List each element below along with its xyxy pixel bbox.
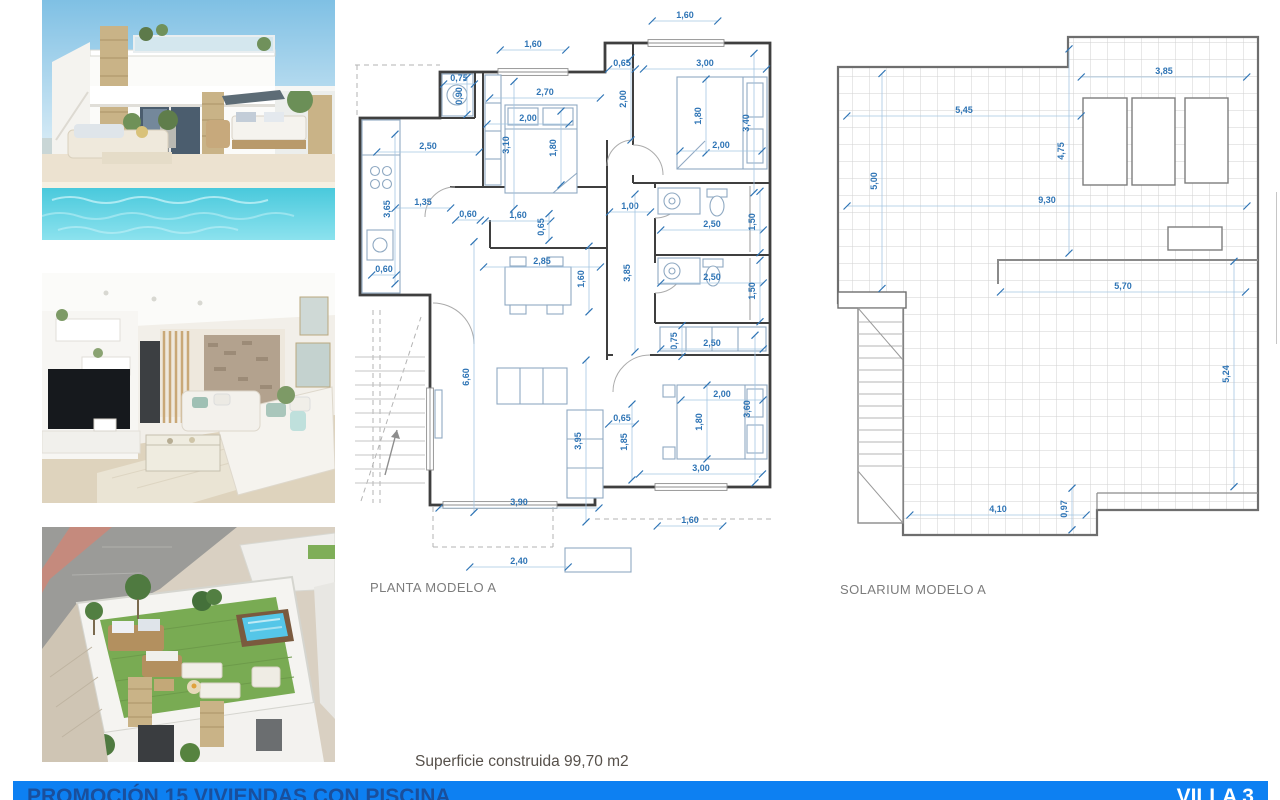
photo-living-room	[42, 273, 335, 503]
dimension-label: 2,00	[618, 90, 628, 108]
pergola-panels	[1083, 98, 1228, 185]
promo-banner-title: PROMOCIÓN 15 VIVIENDAS CON PISCINA	[13, 781, 465, 800]
dimension-label: 0,60	[459, 209, 477, 219]
dimension: 1,60	[649, 10, 722, 25]
photo-rooftop-solarium	[42, 527, 335, 762]
dimension-label: 2,70	[536, 87, 554, 97]
solarium-plan: 3,855,454,755,009,305,705,244,100,97	[835, 25, 1265, 600]
solarium-plan-caption: SOLARIUM MODELO A	[840, 582, 986, 597]
dimension-label: 2,40	[510, 556, 528, 566]
photo-villa-exterior	[42, 0, 335, 240]
dimension-label: 3,90	[510, 497, 528, 507]
dimension-label: 0,75	[450, 73, 468, 83]
dimension-label: 9,30	[1038, 195, 1056, 205]
landing-tab	[838, 292, 906, 308]
dimension-label: 1,60	[676, 10, 694, 20]
dimension-label: 3,00	[696, 58, 714, 68]
dimension-label: 1,80	[693, 107, 703, 125]
dimension-label: 2,50	[703, 272, 721, 282]
dimension-label: 3,60	[742, 400, 752, 418]
promo-banner: PROMOCIÓN 15 VIVIENDAS CON PISCINA VILLA…	[13, 781, 1268, 800]
dimension-label: 3,85	[622, 264, 632, 282]
villa-exterior-render	[42, 0, 335, 240]
dimension-label: 0,90	[454, 87, 464, 105]
promo-banner-villa: VILLA 3	[1163, 781, 1268, 800]
dimension-label: 0,65	[536, 218, 546, 236]
dimension-label: 1,60	[576, 270, 586, 288]
dimension-label: 3,95	[573, 432, 583, 450]
exterior-stairs	[355, 357, 425, 483]
dimension-label: 1,80	[548, 139, 558, 157]
dimension-label: 2,85	[533, 256, 551, 266]
dimension-label: 3,65	[382, 200, 392, 218]
dimension: 1,60	[497, 39, 570, 54]
dimension-label: 6,60	[461, 368, 471, 386]
dimension-label: 2,00	[713, 389, 731, 399]
dimension-label: 1,50	[747, 282, 757, 300]
dimension-label: 0,60	[375, 264, 393, 274]
dimension-label: 4,75	[1056, 142, 1066, 160]
living-room-render	[42, 273, 335, 503]
dimension-label: 1,00	[621, 201, 639, 211]
dimension-label: 2,00	[519, 113, 537, 123]
dimension-label: 4,10	[989, 504, 1007, 514]
dimension-label: 2,50	[703, 338, 721, 348]
dimension: 2,40	[466, 556, 571, 571]
dimension-label: 5,45	[955, 105, 973, 115]
dimension-label: 1,60	[509, 210, 527, 220]
dimension-label: 0,75	[669, 332, 679, 350]
dimension-label: 3,40	[741, 114, 751, 132]
dimension-label: 5,24	[1221, 365, 1231, 383]
dimension-label: 5,00	[869, 172, 879, 190]
floor-plan-drawing: 1,601,600,653,000,750,902,702,002,003,10…	[355, 5, 790, 575]
dimension: 1,60	[654, 515, 727, 530]
dimension-label: 0,65	[613, 58, 631, 68]
dimension-label: 1,60	[524, 39, 542, 49]
dimension-label: 5,70	[1114, 281, 1132, 291]
dimension-label: 2,50	[703, 219, 721, 229]
dimension-label: 0,97	[1059, 500, 1069, 518]
brochure-page: 1,601,600,653,000,750,902,702,002,003,10…	[0, 0, 1280, 800]
solarium-bench	[1168, 227, 1222, 250]
floor-plan: 1,601,600,653,000,750,902,702,002,003,10…	[355, 5, 790, 575]
dimension-label: 0,65	[613, 413, 631, 423]
dimension-label: 3,00	[692, 463, 710, 473]
dimension-label: 2,00	[712, 140, 730, 150]
dimension-label: 1,80	[694, 413, 704, 431]
solarium-stairs	[858, 308, 903, 523]
dimension-label: 3,10	[501, 136, 511, 154]
floor-plan-caption: PLANTA MODELO A	[370, 580, 496, 595]
dimension-label: 1,50	[747, 213, 757, 231]
dimension-label: 1,35	[414, 197, 432, 207]
dimension-label: 3,85	[1155, 66, 1173, 76]
dimension-label: 1,60	[681, 515, 699, 525]
dimension-label: 1,85	[619, 433, 629, 451]
solarium-plan-drawing: 3,855,454,755,009,305,705,244,100,97	[835, 25, 1265, 600]
page-edge-line	[1276, 192, 1277, 344]
dimension-label: 2,50	[419, 141, 437, 151]
built-area-note: Superficie construida 99,70 m2	[415, 753, 629, 771]
rooftop-solarium-render	[42, 527, 335, 762]
